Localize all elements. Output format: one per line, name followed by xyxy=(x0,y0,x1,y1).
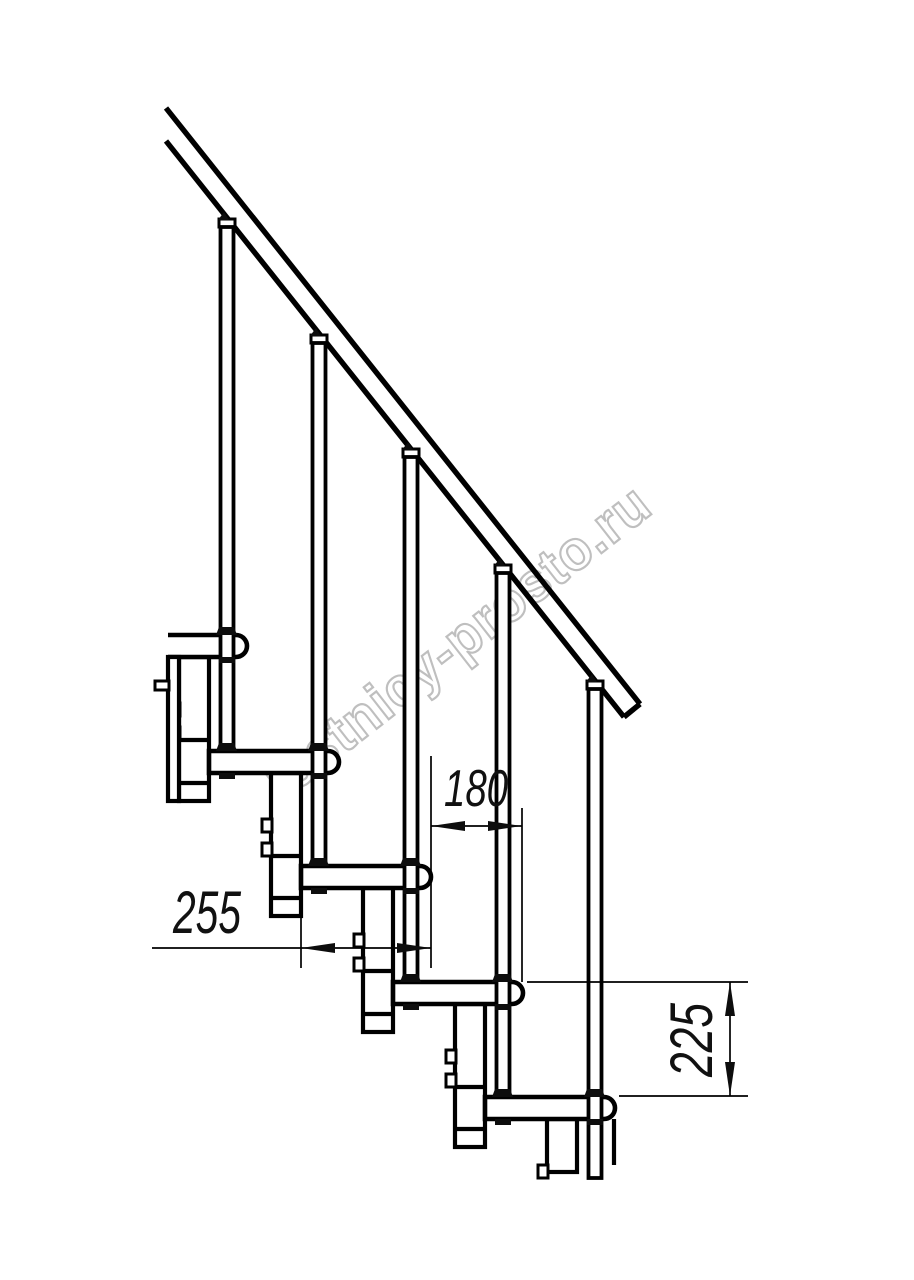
stair-column xyxy=(271,773,301,916)
cut-strip xyxy=(168,657,179,801)
clamp-tab xyxy=(538,1165,548,1178)
stair-column xyxy=(179,657,209,801)
clamp-tab xyxy=(446,1050,456,1063)
arrowhead-left xyxy=(301,943,335,953)
left-cut-structure xyxy=(155,657,179,801)
foot-nut xyxy=(311,888,327,894)
dimension-rise-225: 225 xyxy=(527,982,748,1096)
arrowhead-left xyxy=(431,821,465,831)
baluster-collar xyxy=(492,974,513,982)
clamp-tab xyxy=(446,1074,456,1087)
baluster-foot xyxy=(400,974,421,982)
foot-nut xyxy=(495,1119,511,1125)
baluster xyxy=(497,573,510,1097)
baluster-collar xyxy=(216,627,237,635)
stair-column xyxy=(547,1119,577,1172)
collar-nut xyxy=(403,888,419,894)
clamp-tab xyxy=(354,958,364,971)
arrowhead-down xyxy=(725,1062,735,1096)
clamp-tab xyxy=(262,819,272,832)
balusters xyxy=(218,212,603,1178)
baluster xyxy=(405,457,418,982)
baluster-collar xyxy=(400,858,421,866)
technical-drawing-page: lestnicy-prosto.ru 180 255 xyxy=(0,0,914,1280)
collar-nut xyxy=(219,657,235,663)
baluster-collar xyxy=(584,1089,605,1097)
dimension-value-tread-depth: 255 xyxy=(172,879,241,946)
baluster xyxy=(221,227,234,751)
baluster-foot xyxy=(492,1089,513,1097)
collar-nut xyxy=(311,773,327,779)
baluster xyxy=(589,689,602,1178)
handrail-end-cut xyxy=(624,704,640,717)
baluster xyxy=(313,343,326,866)
cut-tab xyxy=(155,681,169,690)
baluster-collar xyxy=(308,743,329,751)
clamp-tab xyxy=(354,934,364,947)
dimension-value-rise: 225 xyxy=(658,1003,725,1078)
foot-nut xyxy=(403,1004,419,1010)
staircase-side-elevation-drawing: lestnicy-prosto.ru 180 255 xyxy=(0,0,914,1280)
collar-nut xyxy=(495,1004,511,1010)
arrowhead-up xyxy=(725,982,735,1016)
foot-nut xyxy=(219,773,235,779)
dimension-value-going: 180 xyxy=(444,760,508,818)
stair-column xyxy=(363,888,393,1032)
collar-nut xyxy=(587,1119,603,1125)
baluster-foot xyxy=(308,858,329,866)
baluster-foot xyxy=(216,743,237,751)
stair-column xyxy=(455,1004,485,1147)
clamp-tab xyxy=(262,843,272,856)
